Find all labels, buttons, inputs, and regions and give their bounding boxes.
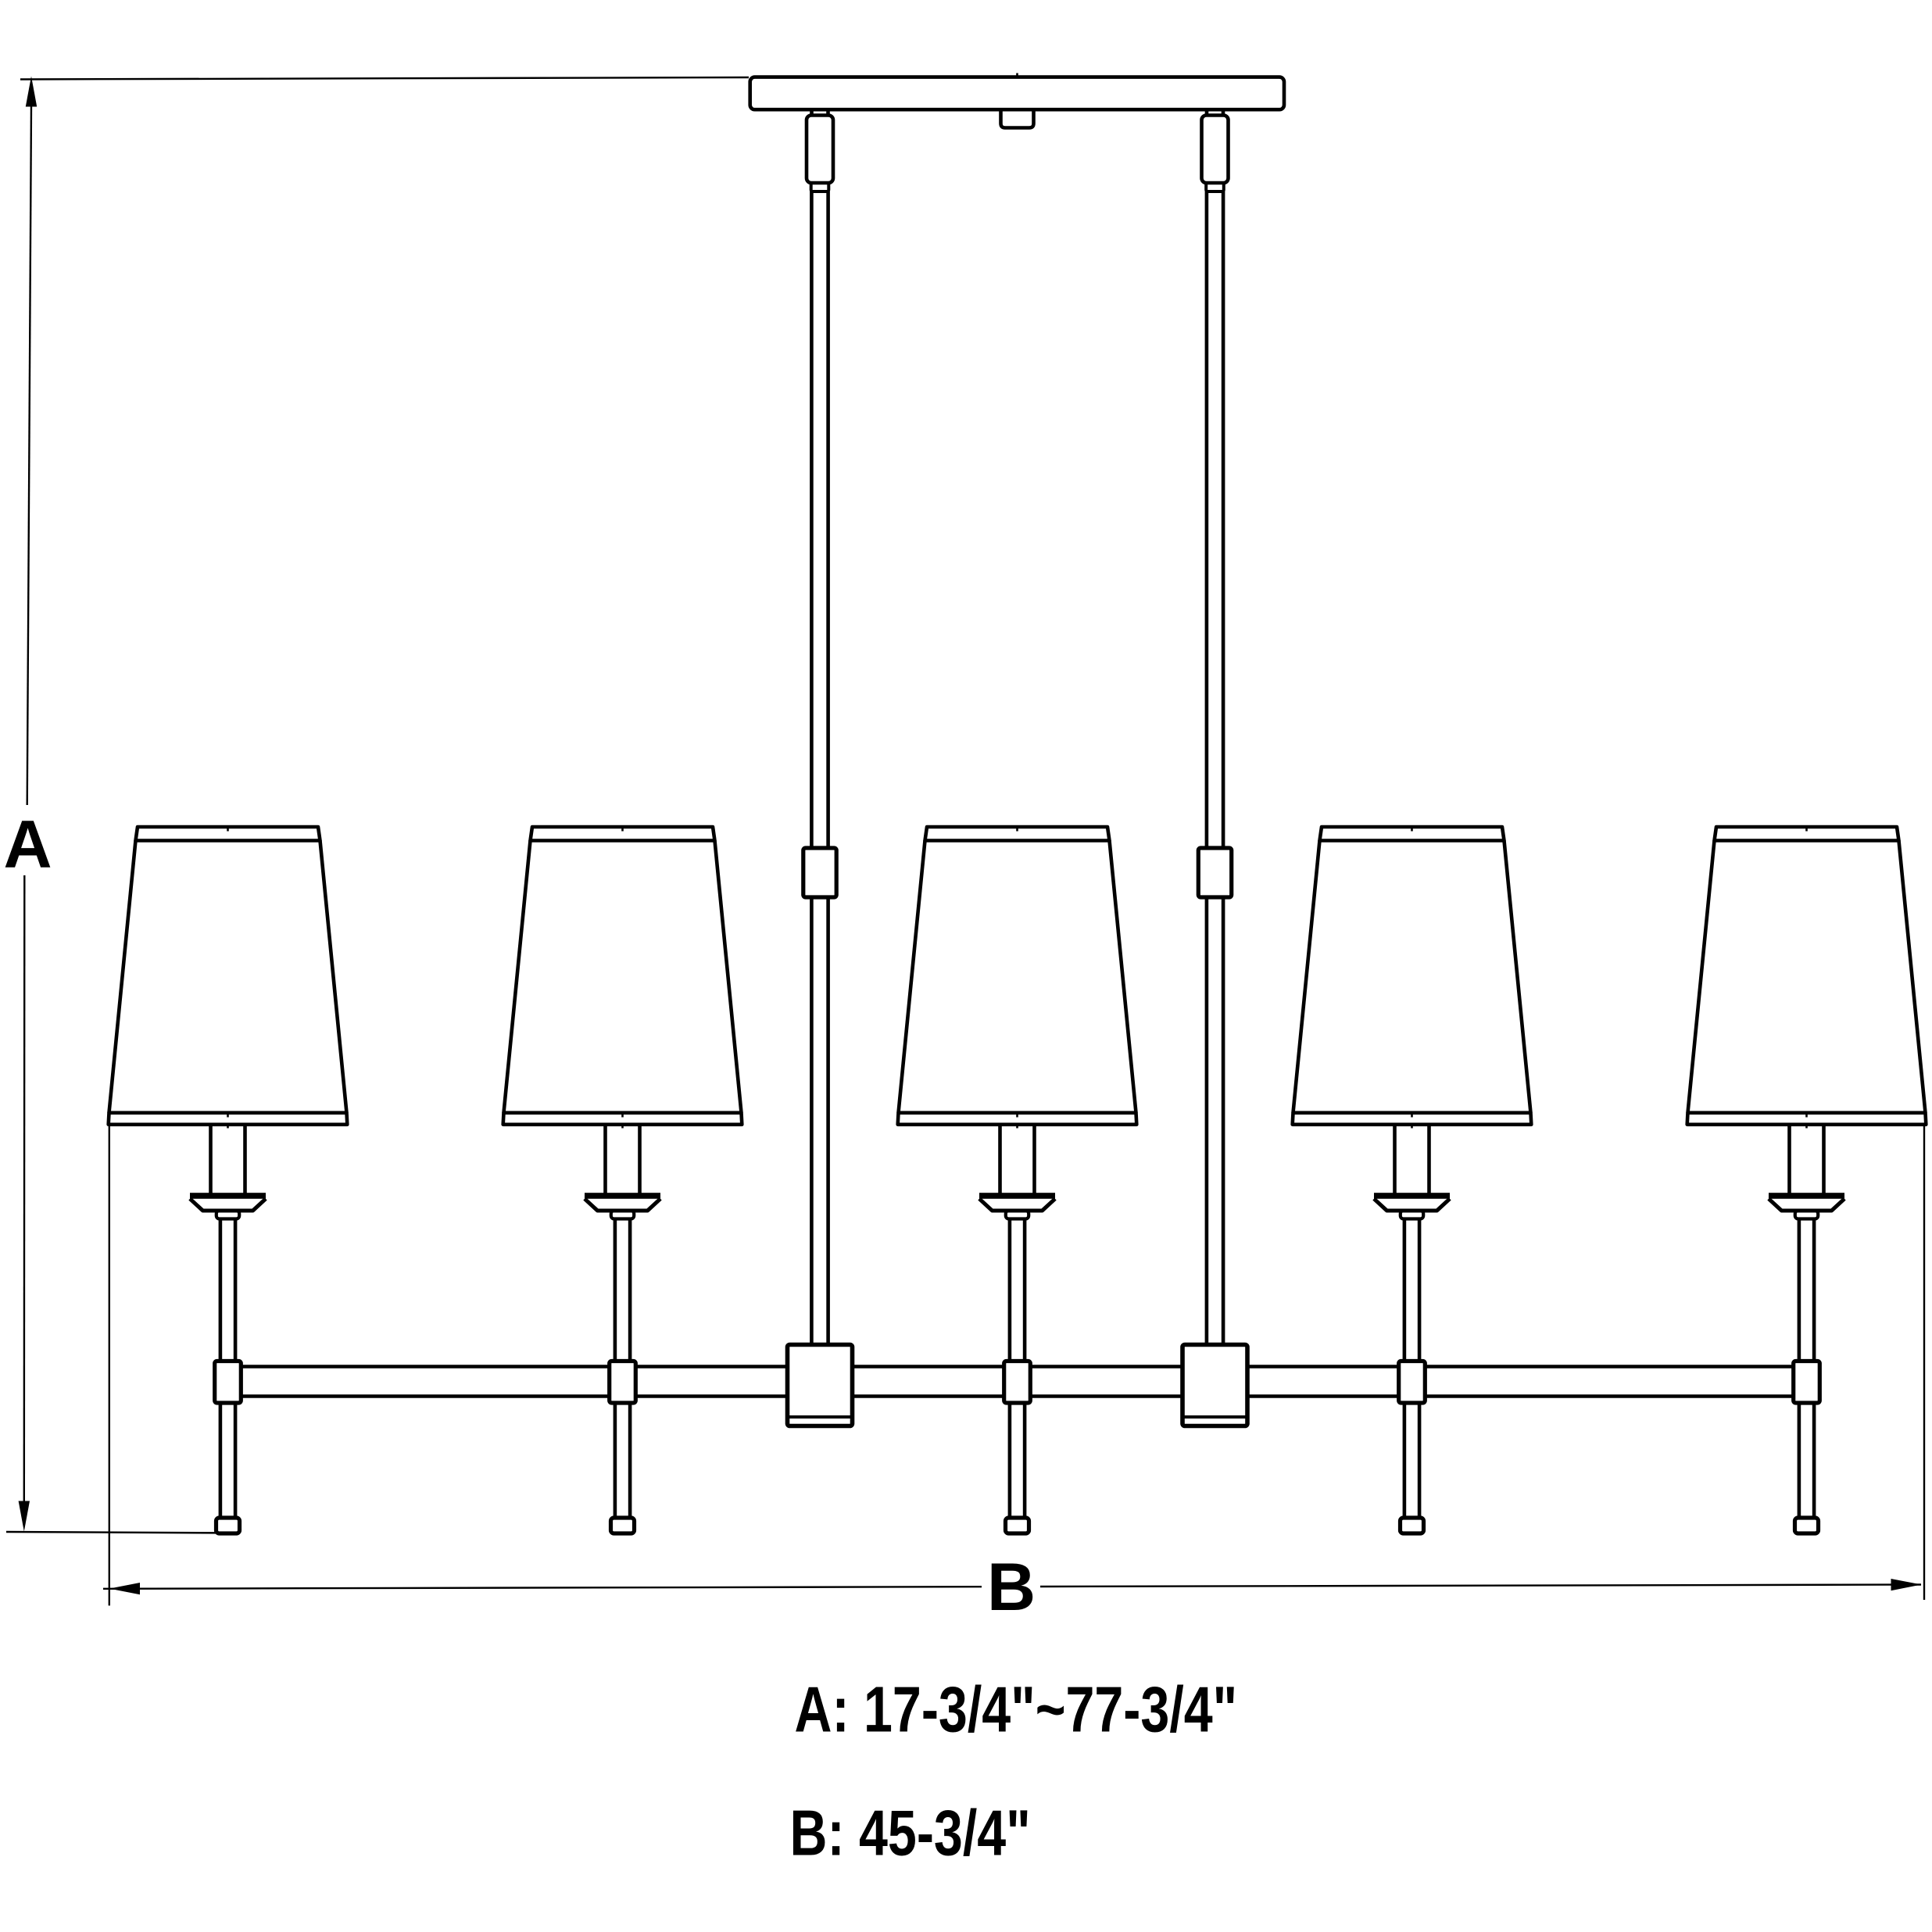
svg-text:A: 17-3/4"~77-3/4": A: 17-3/4"~77-3/4" (795, 1673, 1238, 1745)
svg-text:B: B (987, 1550, 1036, 1625)
svg-text:A: A (3, 807, 52, 882)
svg-text:B: 45-3/4": B: 45-3/4" (790, 1796, 1031, 1869)
